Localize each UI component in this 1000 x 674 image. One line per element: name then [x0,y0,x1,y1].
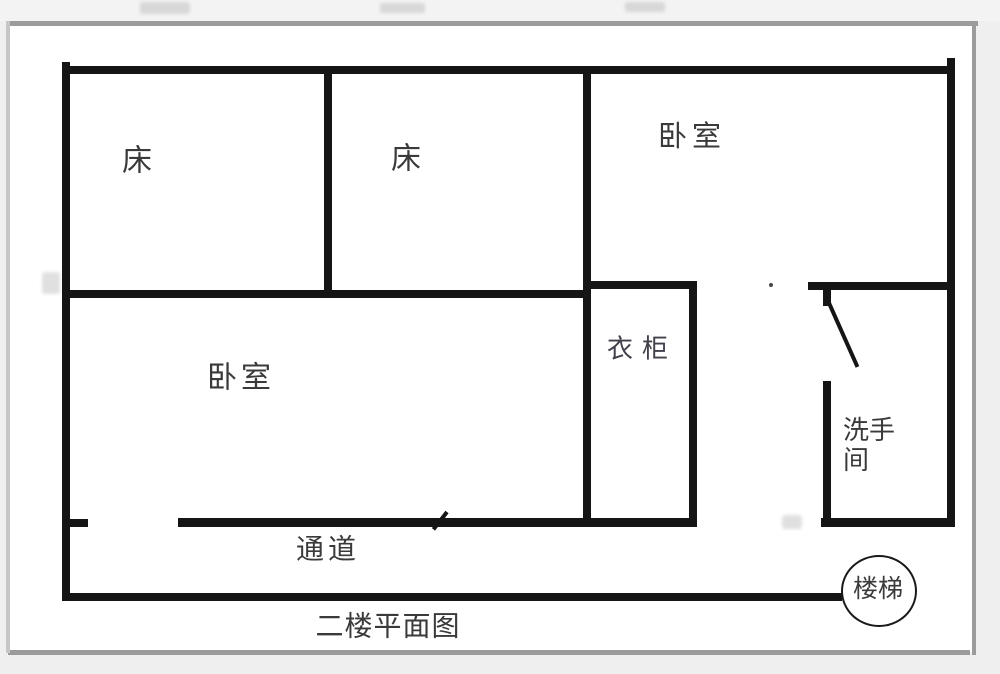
wall-left-exterior [62,62,70,601]
corridor-label: 通道 [296,534,360,563]
wall-bathroom-left [823,381,831,527]
room-label-bed-mid: 床 [391,143,421,175]
wall-below-bed-rooms [62,290,591,298]
page-border-top [6,21,978,26]
watermark-smudge [380,3,425,13]
page-border-bottom [8,650,970,655]
room-label-bathroom: 洗手 间 [843,415,895,475]
room-label-bedroom-main: 卧室 [207,362,275,394]
room-label-bed-left: 床 [122,145,152,177]
wall-mid-vertical [583,74,591,527]
wall-top-exterior [62,66,955,74]
room-label-bedroom-top-right: 卧室 [658,122,726,152]
wall-bed-rooms-divider [324,74,332,293]
stairs-label: 楼梯 [853,576,903,602]
wall-bottom-exterior [62,593,842,601]
wall-bedroom-top-right-bottom [808,282,947,290]
bathroom-label-line1: 洗手 [843,415,895,445]
room-label-wardrobe: 衣柜 [607,335,677,362]
page-border-left [6,21,10,653]
floor-plan-image: 床 床 卧室 卧室 衣柜 洗手 间 通道 楼梯 二楼平面图 [0,0,1000,674]
page-border-right [972,21,976,655]
ink-speck [769,283,773,287]
wall-wardrobe-right [689,281,697,527]
wall-bathroom-bottom [821,518,955,527]
watermark-smudge [625,2,665,12]
page-background [8,24,972,652]
watermark-smudge [42,272,60,294]
plan-caption: 二楼平面图 [315,611,460,640]
watermark-smudge [140,2,190,14]
watermark-smudge [782,515,802,529]
wall-wardrobe-top [591,281,697,289]
wall-right-exterior [947,58,955,527]
bathroom-label-line2: 间 [843,445,895,475]
wall-corridor-stub-left [70,519,88,527]
